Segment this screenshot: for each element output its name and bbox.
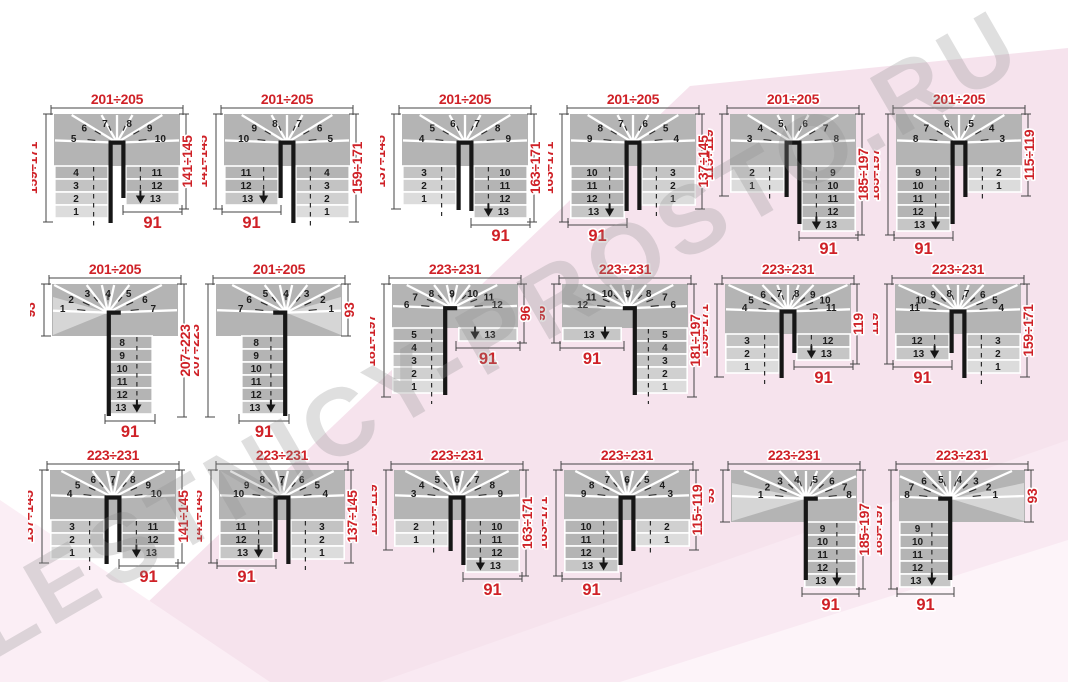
step-number: 3 bbox=[411, 489, 417, 500]
step-number: 8 bbox=[253, 338, 259, 349]
dim-right-label: 119 bbox=[850, 313, 866, 335]
step-number: 9 bbox=[915, 524, 921, 535]
step-number: 12 bbox=[911, 336, 923, 347]
step-number: 12 bbox=[151, 181, 163, 192]
dim-bottom-label: 91 bbox=[483, 581, 501, 599]
dimension-line bbox=[391, 114, 401, 209]
step-number: 11 bbox=[117, 377, 128, 388]
step-number: 11 bbox=[586, 293, 597, 304]
step-number: 10 bbox=[817, 537, 829, 548]
step-number: 10 bbox=[915, 296, 927, 307]
step-number: 12 bbox=[912, 563, 924, 574]
step-number: 5 bbox=[992, 296, 998, 307]
step-number: 8 bbox=[130, 475, 136, 486]
step-number: 9 bbox=[587, 134, 593, 145]
step-number: 5 bbox=[644, 475, 650, 486]
step-number: 9 bbox=[252, 124, 258, 135]
step-number: 8 bbox=[429, 289, 435, 300]
step-number: 13 bbox=[913, 349, 925, 360]
step-number: 1 bbox=[995, 362, 1001, 373]
stair-plan-svg: 98765431011121321223÷231163÷171115÷11991 bbox=[542, 440, 720, 640]
dim-bottom-label: 91 bbox=[916, 596, 934, 614]
dimension-line bbox=[720, 470, 730, 522]
step-number: 1 bbox=[413, 535, 419, 546]
step-number: 1 bbox=[744, 362, 750, 373]
step-number: 9 bbox=[244, 481, 250, 492]
step-number: 11 bbox=[828, 194, 839, 205]
step-number: 7 bbox=[296, 119, 302, 130]
step-number: 4 bbox=[999, 303, 1005, 314]
step-number: 12 bbox=[580, 548, 592, 559]
stair-plan-geometry: 87654391011121321201÷205185÷197115÷11991 bbox=[874, 91, 1037, 258]
step-number: 2 bbox=[744, 349, 750, 360]
dim-bottom-label: 91 bbox=[913, 369, 931, 387]
dim-left-label: 207÷223 bbox=[194, 324, 202, 377]
dimension-line bbox=[39, 470, 49, 563]
step-number: 6 bbox=[404, 300, 410, 311]
stair-diagram: 12345678910111213223÷23193185÷19791 bbox=[709, 440, 887, 640]
step-number: 13 bbox=[826, 220, 838, 231]
dim-left-label: 163÷171 bbox=[542, 496, 550, 549]
step-number: 13 bbox=[583, 330, 595, 341]
dim-left-label: 119 bbox=[873, 313, 881, 335]
dimension-line bbox=[41, 284, 51, 336]
step-number: 13 bbox=[582, 561, 594, 572]
step-number: 7 bbox=[823, 124, 829, 135]
step-number: 3 bbox=[421, 168, 427, 179]
step-number: 8 bbox=[495, 124, 501, 135]
dim-right-label: 137÷145 bbox=[344, 490, 360, 543]
dim-right-label: 207÷223 bbox=[177, 324, 193, 377]
step-number: 3 bbox=[973, 476, 979, 487]
dim-bottom-label: 91 bbox=[814, 369, 832, 387]
step-number: 7 bbox=[238, 304, 244, 315]
dim-right-label: 93 bbox=[341, 302, 357, 317]
step-number: 4 bbox=[419, 134, 425, 145]
dim-top-label: 223÷231 bbox=[87, 447, 140, 463]
step-number: 1 bbox=[73, 207, 79, 218]
step-number: 10 bbox=[233, 489, 245, 500]
step-number: 6 bbox=[450, 119, 456, 130]
dimension-line bbox=[205, 284, 215, 417]
step-number: 12 bbox=[235, 535, 247, 546]
step-number: 8 bbox=[119, 338, 125, 349]
step-number: 12 bbox=[251, 390, 263, 401]
step-number: 11 bbox=[148, 522, 159, 533]
dim-right-label: 159÷171 bbox=[1020, 304, 1036, 357]
step-number: 5 bbox=[662, 330, 668, 341]
step-number: 9 bbox=[930, 290, 936, 301]
step-number: 7 bbox=[604, 475, 610, 486]
dim-top-label: 201÷205 bbox=[767, 91, 820, 107]
dim-right-label: 159÷171 bbox=[349, 141, 365, 194]
step-number: 12 bbox=[117, 390, 129, 401]
stair-plan-svg: 45678910113211213223÷231159÷17111991 bbox=[703, 254, 881, 454]
dim-left-label: 159÷171 bbox=[32, 141, 40, 194]
step-number: 7 bbox=[279, 475, 285, 486]
step-number: 6 bbox=[299, 475, 305, 486]
step-number: 1 bbox=[664, 535, 670, 546]
stair-diagram: 10987654111213321223÷231141÷145137÷14591 bbox=[197, 440, 375, 640]
step-number: 5 bbox=[748, 296, 754, 307]
dim-left-label: 115÷119 bbox=[372, 484, 380, 535]
dim-right-label: 181÷197 bbox=[687, 314, 703, 367]
stair-plan-svg: 34567892110111213223÷231115÷119163÷17191 bbox=[372, 440, 550, 640]
stair-plan-geometry: 45678910113211213223÷231159÷17111991 bbox=[703, 261, 866, 387]
step-number: 7 bbox=[924, 124, 930, 135]
step-number: 1 bbox=[993, 490, 999, 501]
dim-left-label: 141÷145 bbox=[202, 135, 210, 188]
dim-right-label: 93 bbox=[1024, 488, 1040, 503]
stair-plan-geometry: 98765410111213321201÷205163÷171137÷14591 bbox=[548, 91, 711, 245]
step-number: 2 bbox=[664, 522, 670, 533]
step-number: 6 bbox=[980, 290, 986, 301]
step-number: 5 bbox=[430, 124, 436, 135]
step-number: 9 bbox=[449, 289, 455, 300]
stair-plan-geometry: 98765431011121321223÷231163÷171115÷11991 bbox=[542, 447, 705, 599]
dim-right-label: 185÷197 bbox=[855, 148, 871, 201]
step-number: 3 bbox=[319, 522, 325, 533]
stair-diagram: 45678910321111213223÷231137÷145141÷14591 bbox=[28, 440, 206, 640]
step-number: 4 bbox=[660, 481, 666, 492]
step-number: 13 bbox=[484, 330, 496, 341]
dim-bottom-label: 91 bbox=[583, 350, 601, 368]
step-number: 10 bbox=[151, 489, 163, 500]
step-number: 4 bbox=[283, 289, 289, 300]
step-number: 2 bbox=[749, 168, 755, 179]
step-number: 12 bbox=[817, 563, 829, 574]
dim-bottom-label: 91 bbox=[491, 227, 509, 245]
dim-top-label: 223÷231 bbox=[431, 447, 484, 463]
step-number: 7 bbox=[412, 293, 418, 304]
step-number: 4 bbox=[989, 124, 995, 135]
dimension-line bbox=[381, 284, 391, 397]
step-number: 12 bbox=[492, 300, 504, 311]
dimension-line bbox=[213, 114, 223, 209]
step-number: 5 bbox=[315, 481, 321, 492]
step-number: 8 bbox=[834, 134, 840, 145]
step-number: 4 bbox=[674, 134, 680, 145]
step-number: 3 bbox=[69, 522, 75, 533]
step-number: 6 bbox=[921, 476, 927, 487]
step-number: 6 bbox=[829, 476, 835, 487]
dim-top-label: 223÷231 bbox=[256, 447, 309, 463]
step-number: 9 bbox=[581, 489, 587, 500]
dimension-line bbox=[714, 284, 724, 377]
step-number: 2 bbox=[421, 181, 427, 192]
step-number: 6 bbox=[760, 290, 766, 301]
step-number: 6 bbox=[671, 300, 677, 311]
stair-plan-svg: 67891011125432113223÷231181÷1979691 bbox=[370, 254, 548, 454]
step-number: 3 bbox=[670, 168, 676, 179]
step-number: 2 bbox=[670, 181, 676, 192]
step-number: 4 bbox=[662, 343, 668, 354]
step-number: 12 bbox=[827, 207, 839, 218]
step-number: 8 bbox=[846, 490, 852, 501]
step-number: 1 bbox=[670, 194, 676, 205]
step-number: 10 bbox=[602, 289, 614, 300]
step-number: 13 bbox=[910, 576, 922, 587]
step-number: 4 bbox=[794, 475, 800, 486]
dimension-line bbox=[383, 470, 393, 550]
dimension-line bbox=[43, 114, 53, 222]
dim-bottom-label: 91 bbox=[255, 423, 273, 441]
dim-bottom-label: 91 bbox=[242, 214, 260, 232]
stair-plan-svg: 87654321910111213223÷231185÷1979391 bbox=[877, 440, 1055, 640]
dim-bottom-label: 91 bbox=[237, 568, 255, 586]
step-number: 2 bbox=[662, 369, 668, 380]
step-number: 10 bbox=[117, 364, 129, 375]
step-number: 6 bbox=[142, 295, 148, 306]
stair-plan-geometry: 34567892110111213223÷231115÷119163÷17191 bbox=[372, 447, 535, 599]
stair-diagram: 12345678910111213201÷20593207÷22391 bbox=[30, 254, 208, 454]
step-number: 9 bbox=[119, 351, 125, 362]
dim-bottom-label: 91 bbox=[582, 581, 600, 599]
stair-diagram: 45678910113211213223÷231159÷17111991 bbox=[703, 254, 881, 454]
step-number: 4 bbox=[956, 475, 962, 486]
stair-diagram: 76543218910111213201÷205207÷2239391 bbox=[194, 254, 372, 454]
step-number: 13 bbox=[150, 194, 162, 205]
step-number: 3 bbox=[324, 181, 330, 192]
step-number: 13 bbox=[146, 548, 158, 559]
step-number: 1 bbox=[421, 194, 427, 205]
dim-top-label: 201÷205 bbox=[607, 91, 660, 107]
step-number: 2 bbox=[411, 369, 417, 380]
step-number: 2 bbox=[996, 168, 1002, 179]
step-number: 11 bbox=[492, 535, 503, 546]
step-number: 3 bbox=[304, 289, 310, 300]
dimension-line bbox=[884, 284, 894, 364]
step-number: 10 bbox=[238, 134, 250, 145]
step-number: 2 bbox=[68, 295, 74, 306]
stair-plan-geometry: 76543218910111213201÷205207÷2239391 bbox=[194, 261, 357, 441]
step-number: 8 bbox=[259, 475, 265, 486]
step-number: 6 bbox=[246, 295, 252, 306]
stair-plan-geometry: 45678932110111213201÷205137÷145163÷17191 bbox=[380, 91, 543, 245]
dim-right-label: 115÷119 bbox=[1021, 129, 1037, 180]
step-number: 8 bbox=[126, 119, 132, 130]
dim-left-label: 115÷119 bbox=[708, 129, 716, 180]
stair-plan-svg: 10987654111213321223÷231141÷145137÷14591 bbox=[197, 440, 375, 640]
step-number: 7 bbox=[151, 304, 157, 315]
stair-diagram: 67891011125432113223÷231181÷1979691 bbox=[370, 254, 548, 454]
step-number: 4 bbox=[419, 481, 425, 492]
step-number: 10 bbox=[251, 364, 263, 375]
step-number: 3 bbox=[85, 289, 91, 300]
step-number: 9 bbox=[506, 134, 512, 145]
step-number: 10 bbox=[155, 134, 167, 145]
diagram-grid: 56789104321111213201÷205159÷171141÷14591… bbox=[0, 0, 1068, 682]
stair-plan-svg: 12345678910111213223÷23193185÷19791 bbox=[709, 440, 887, 640]
stair-plan-geometry: 11109876541213321223÷231119159÷17191 bbox=[873, 261, 1036, 387]
step-number: 8 bbox=[490, 481, 496, 492]
stair-plan-geometry: 56789104321111213201÷205159÷171141÷14591 bbox=[32, 91, 195, 232]
step-number: 11 bbox=[241, 168, 252, 179]
dim-top-label: 201÷205 bbox=[89, 261, 142, 277]
dim-left-label: 185÷197 bbox=[877, 503, 885, 556]
step-number: 2 bbox=[413, 522, 419, 533]
step-number: 7 bbox=[110, 475, 116, 486]
step-number: 1 bbox=[411, 382, 417, 393]
dim-bottom-label: 91 bbox=[121, 423, 139, 441]
step-number: 4 bbox=[758, 124, 764, 135]
step-number: 1 bbox=[329, 304, 335, 315]
step-number: 13 bbox=[815, 576, 827, 587]
step-number: 13 bbox=[821, 349, 833, 360]
step-number: 3 bbox=[73, 181, 79, 192]
step-number: 13 bbox=[237, 548, 249, 559]
step-number: 10 bbox=[467, 289, 479, 300]
step-number: 5 bbox=[75, 481, 81, 492]
step-number: 13 bbox=[498, 207, 510, 218]
step-number: 3 bbox=[777, 476, 783, 487]
step-number: 5 bbox=[434, 475, 440, 486]
step-number: 7 bbox=[618, 119, 624, 130]
step-number: 10 bbox=[580, 522, 592, 533]
step-number: 4 bbox=[324, 168, 330, 179]
step-number: 6 bbox=[944, 119, 950, 130]
stair-plan-svg: 11109876541213321223÷231119159÷17191 bbox=[873, 254, 1051, 454]
step-number: 13 bbox=[249, 403, 261, 414]
stair-plan-svg: 76543218910111213201÷205207÷2239391 bbox=[194, 254, 372, 454]
step-number: 13 bbox=[490, 561, 502, 572]
step-number: 5 bbox=[968, 119, 974, 130]
step-number: 11 bbox=[236, 522, 247, 533]
step-number: 11 bbox=[587, 181, 598, 192]
step-number: 11 bbox=[581, 535, 592, 546]
dim-top-label: 223÷231 bbox=[762, 261, 815, 277]
step-number: 10 bbox=[499, 168, 511, 179]
step-number: 8 bbox=[913, 134, 919, 145]
step-number: 4 bbox=[742, 303, 748, 314]
stair-plan-geometry: 10987651112134321201÷205141÷145159÷17191 bbox=[202, 91, 365, 232]
dim-bottom-label: 91 bbox=[588, 227, 606, 245]
dim-right-label: 163÷171 bbox=[527, 141, 543, 194]
step-number: 4 bbox=[105, 289, 111, 300]
step-number: 10 bbox=[912, 537, 924, 548]
step-number: 12 bbox=[499, 194, 511, 205]
dim-left-label: 93 bbox=[709, 488, 717, 503]
dim-top-label: 223÷231 bbox=[601, 447, 654, 463]
dim-bottom-label: 91 bbox=[821, 596, 839, 614]
stair-plan-svg: 45678910321111213223÷231137÷145141÷14591 bbox=[28, 440, 206, 640]
dim-right-label: 96 bbox=[517, 306, 533, 321]
step-number: 8 bbox=[794, 289, 800, 300]
dim-top-label: 201÷205 bbox=[933, 91, 986, 107]
step-number: 5 bbox=[126, 289, 132, 300]
stair-plan-svg: 12111098765432113223÷23196181÷19791 bbox=[540, 254, 718, 454]
dim-top-label: 201÷205 bbox=[261, 91, 314, 107]
step-number: 3 bbox=[668, 489, 674, 500]
step-number: 5 bbox=[411, 330, 417, 341]
dim-top-label: 201÷205 bbox=[91, 91, 144, 107]
step-number: 12 bbox=[491, 548, 503, 559]
dimension-line bbox=[885, 114, 895, 235]
step-number: 7 bbox=[662, 293, 668, 304]
step-number: 1 bbox=[758, 490, 764, 501]
step-number: 4 bbox=[73, 168, 79, 179]
step-number: 9 bbox=[253, 351, 259, 362]
dim-right-label: 163÷171 bbox=[519, 496, 535, 549]
step-number: 13 bbox=[588, 207, 600, 218]
step-number: 5 bbox=[938, 475, 944, 486]
step-number: 5 bbox=[812, 475, 818, 486]
step-number: 4 bbox=[323, 489, 329, 500]
step-number: 3 bbox=[744, 336, 750, 347]
step-number: 11 bbox=[500, 181, 511, 192]
step-number: 3 bbox=[662, 356, 668, 367]
step-number: 2 bbox=[986, 482, 992, 493]
step-number: 12 bbox=[586, 194, 598, 205]
step-number: 3 bbox=[1000, 134, 1006, 145]
step-number: 2 bbox=[319, 535, 325, 546]
step-number: 5 bbox=[328, 134, 334, 145]
step-number: 11 bbox=[817, 550, 828, 561]
step-number: 11 bbox=[912, 550, 923, 561]
stair-diagram: 12111098765432113223÷23196181÷19791 bbox=[540, 254, 718, 454]
dim-left-label: 93 bbox=[30, 302, 38, 317]
step-number: 11 bbox=[826, 303, 837, 314]
dim-top-label: 201÷205 bbox=[439, 91, 492, 107]
stair-diagram: 11109876541213321223÷231119159÷17191 bbox=[873, 254, 1051, 454]
stair-diagram: 98765431011121321223÷231163÷171115÷11991 bbox=[542, 440, 720, 640]
step-number: 8 bbox=[589, 481, 595, 492]
step-number: 6 bbox=[454, 475, 460, 486]
step-number: 11 bbox=[152, 168, 163, 179]
dim-left-label: 163÷171 bbox=[548, 141, 556, 194]
step-number: 9 bbox=[625, 289, 631, 300]
stair-plan-geometry: 12111098765432113223÷23196181÷19791 bbox=[540, 261, 703, 404]
dimension-line bbox=[208, 470, 218, 563]
step-number: 2 bbox=[765, 482, 771, 493]
step-number: 13 bbox=[115, 403, 127, 414]
step-number: 9 bbox=[820, 524, 826, 535]
stair-plan-geometry: 45678910321111213223÷231137÷145141÷14591 bbox=[28, 447, 191, 586]
step-number: 6 bbox=[82, 124, 88, 135]
step-number: 13 bbox=[242, 194, 254, 205]
step-number: 1 bbox=[662, 382, 668, 393]
step-number: 7 bbox=[777, 289, 783, 300]
step-number: 1 bbox=[60, 304, 66, 315]
dim-left-label: 137÷145 bbox=[28, 490, 36, 543]
step-number: 1 bbox=[996, 181, 1002, 192]
step-number: 7 bbox=[474, 119, 480, 130]
dim-bottom-label: 91 bbox=[139, 568, 157, 586]
dim-left-label: 137÷145 bbox=[380, 135, 388, 188]
stair-diagram: 87654321910111213223÷231185÷1979391 bbox=[877, 440, 1055, 640]
dim-right-label: 115÷119 bbox=[689, 484, 705, 535]
step-number: 6 bbox=[642, 119, 648, 130]
stair-plan-geometry: 34567821910111213201÷205115÷119185÷19791 bbox=[708, 91, 871, 258]
step-number: 8 bbox=[947, 289, 953, 300]
step-number: 3 bbox=[411, 356, 417, 367]
stair-plan-geometry: 10987654111213321223÷231141÷145137÷14591 bbox=[197, 447, 360, 586]
stair-layouts-page: 56789104321111213201÷205159÷171141÷14591… bbox=[0, 0, 1068, 682]
step-number: 1 bbox=[749, 181, 755, 192]
step-number: 9 bbox=[498, 489, 504, 500]
step-number: 5 bbox=[663, 124, 669, 135]
step-number: 7 bbox=[102, 119, 108, 130]
step-number: 13 bbox=[914, 220, 926, 231]
step-number: 12 bbox=[912, 207, 924, 218]
step-number: 9 bbox=[810, 290, 816, 301]
stair-plan-svg: 12345678910111213201÷20593207÷22391 bbox=[30, 254, 208, 454]
step-number: 4 bbox=[67, 489, 73, 500]
dim-top-label: 223÷231 bbox=[599, 261, 652, 277]
step-number: 4 bbox=[411, 343, 417, 354]
dim-right-label: 185÷197 bbox=[856, 503, 872, 556]
dim-bottom-label: 91 bbox=[479, 350, 497, 368]
